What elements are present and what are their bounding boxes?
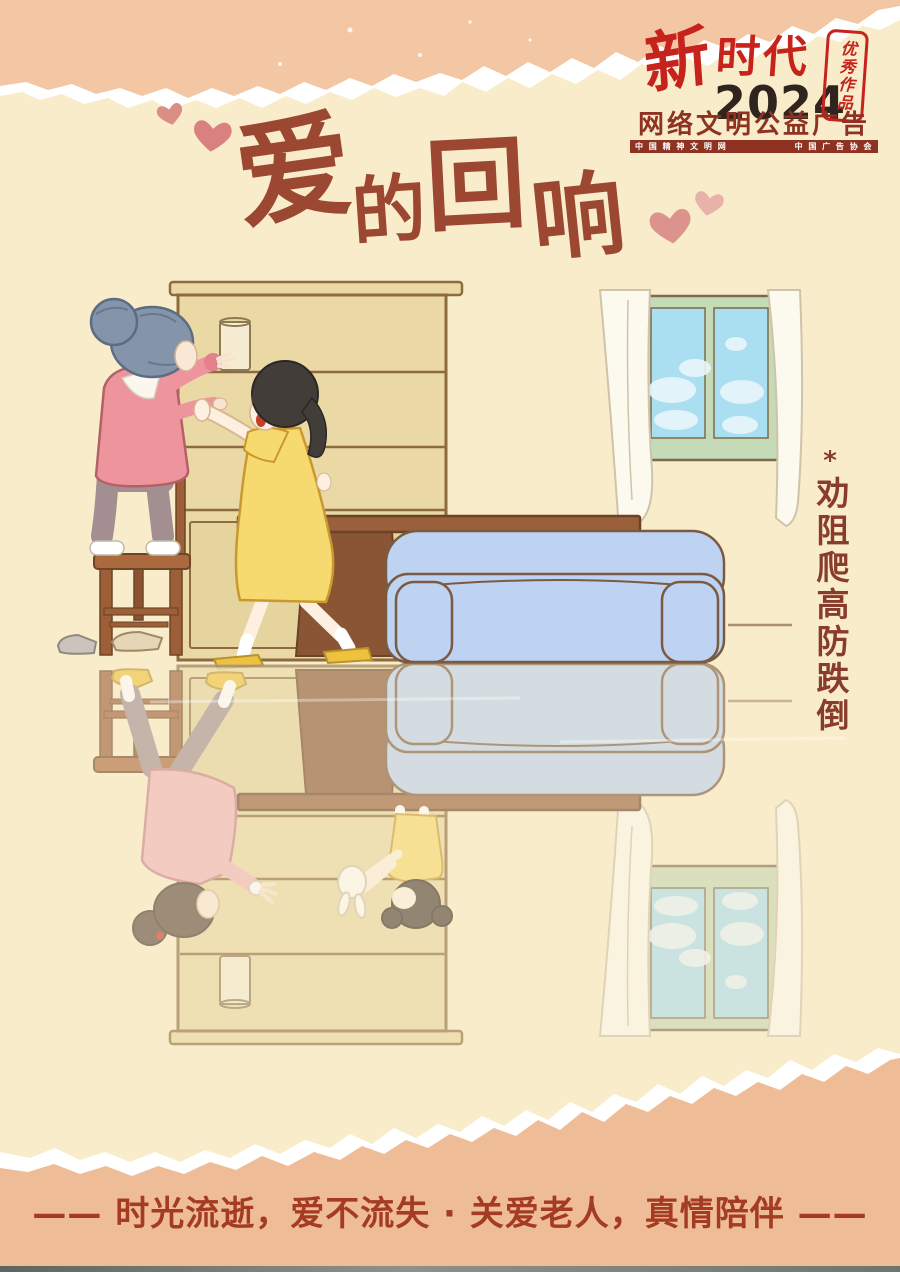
- daughter-sock: [341, 634, 349, 648]
- grandmother-face: [175, 341, 197, 371]
- heart-icon: [192, 120, 233, 154]
- slogan-text: 时光流逝，爱不流失 · 关爱老人，真情陪伴: [115, 1194, 785, 1234]
- safety-note-text: 劝阻爬高防跌倒: [811, 476, 850, 735]
- daughter-sock: [243, 640, 247, 656]
- sofa: [386, 531, 724, 662]
- logo-brand-text: 时代: [714, 36, 811, 80]
- poster-root: 新 时代 2024 优秀作品 网络文明公益广告 中 国 精 神 文 明 网 中 …: [0, 0, 900, 1272]
- daughter-back-hand: [317, 473, 331, 491]
- grandmother-shoe: [90, 541, 124, 555]
- window: [640, 296, 778, 460]
- illustration-scene: [0, 270, 900, 1080]
- asterisk-mark: *: [815, 446, 845, 476]
- safety-note: *劝阻爬高防跌倒: [802, 446, 848, 735]
- logo-brand-calligraphy: 新: [642, 22, 712, 100]
- slogan-dash-left: ——: [32, 1194, 115, 1234]
- grandmother-hair-bun: [91, 299, 137, 345]
- hearts-decoration: [120, 90, 780, 290]
- award-seal-text: 优秀作品: [831, 39, 860, 112]
- slogan: —— 时光流逝，爱不流失 · 关爱老人，真情陪伴 ——: [0, 1186, 900, 1235]
- slogan-dash-right: ——: [785, 1194, 868, 1234]
- heart-icon: [649, 208, 694, 246]
- torn-bottom-band: [0, 1040, 900, 1272]
- grandmother-shoe: [146, 541, 180, 555]
- daughter-hand: [194, 399, 210, 421]
- bottom-strip: [0, 1266, 900, 1272]
- org-right: 中 国 广 告 协 会: [795, 141, 873, 152]
- reflection-veil: [0, 664, 900, 1080]
- heart-icon: [156, 102, 185, 127]
- heart-icon: [692, 190, 724, 218]
